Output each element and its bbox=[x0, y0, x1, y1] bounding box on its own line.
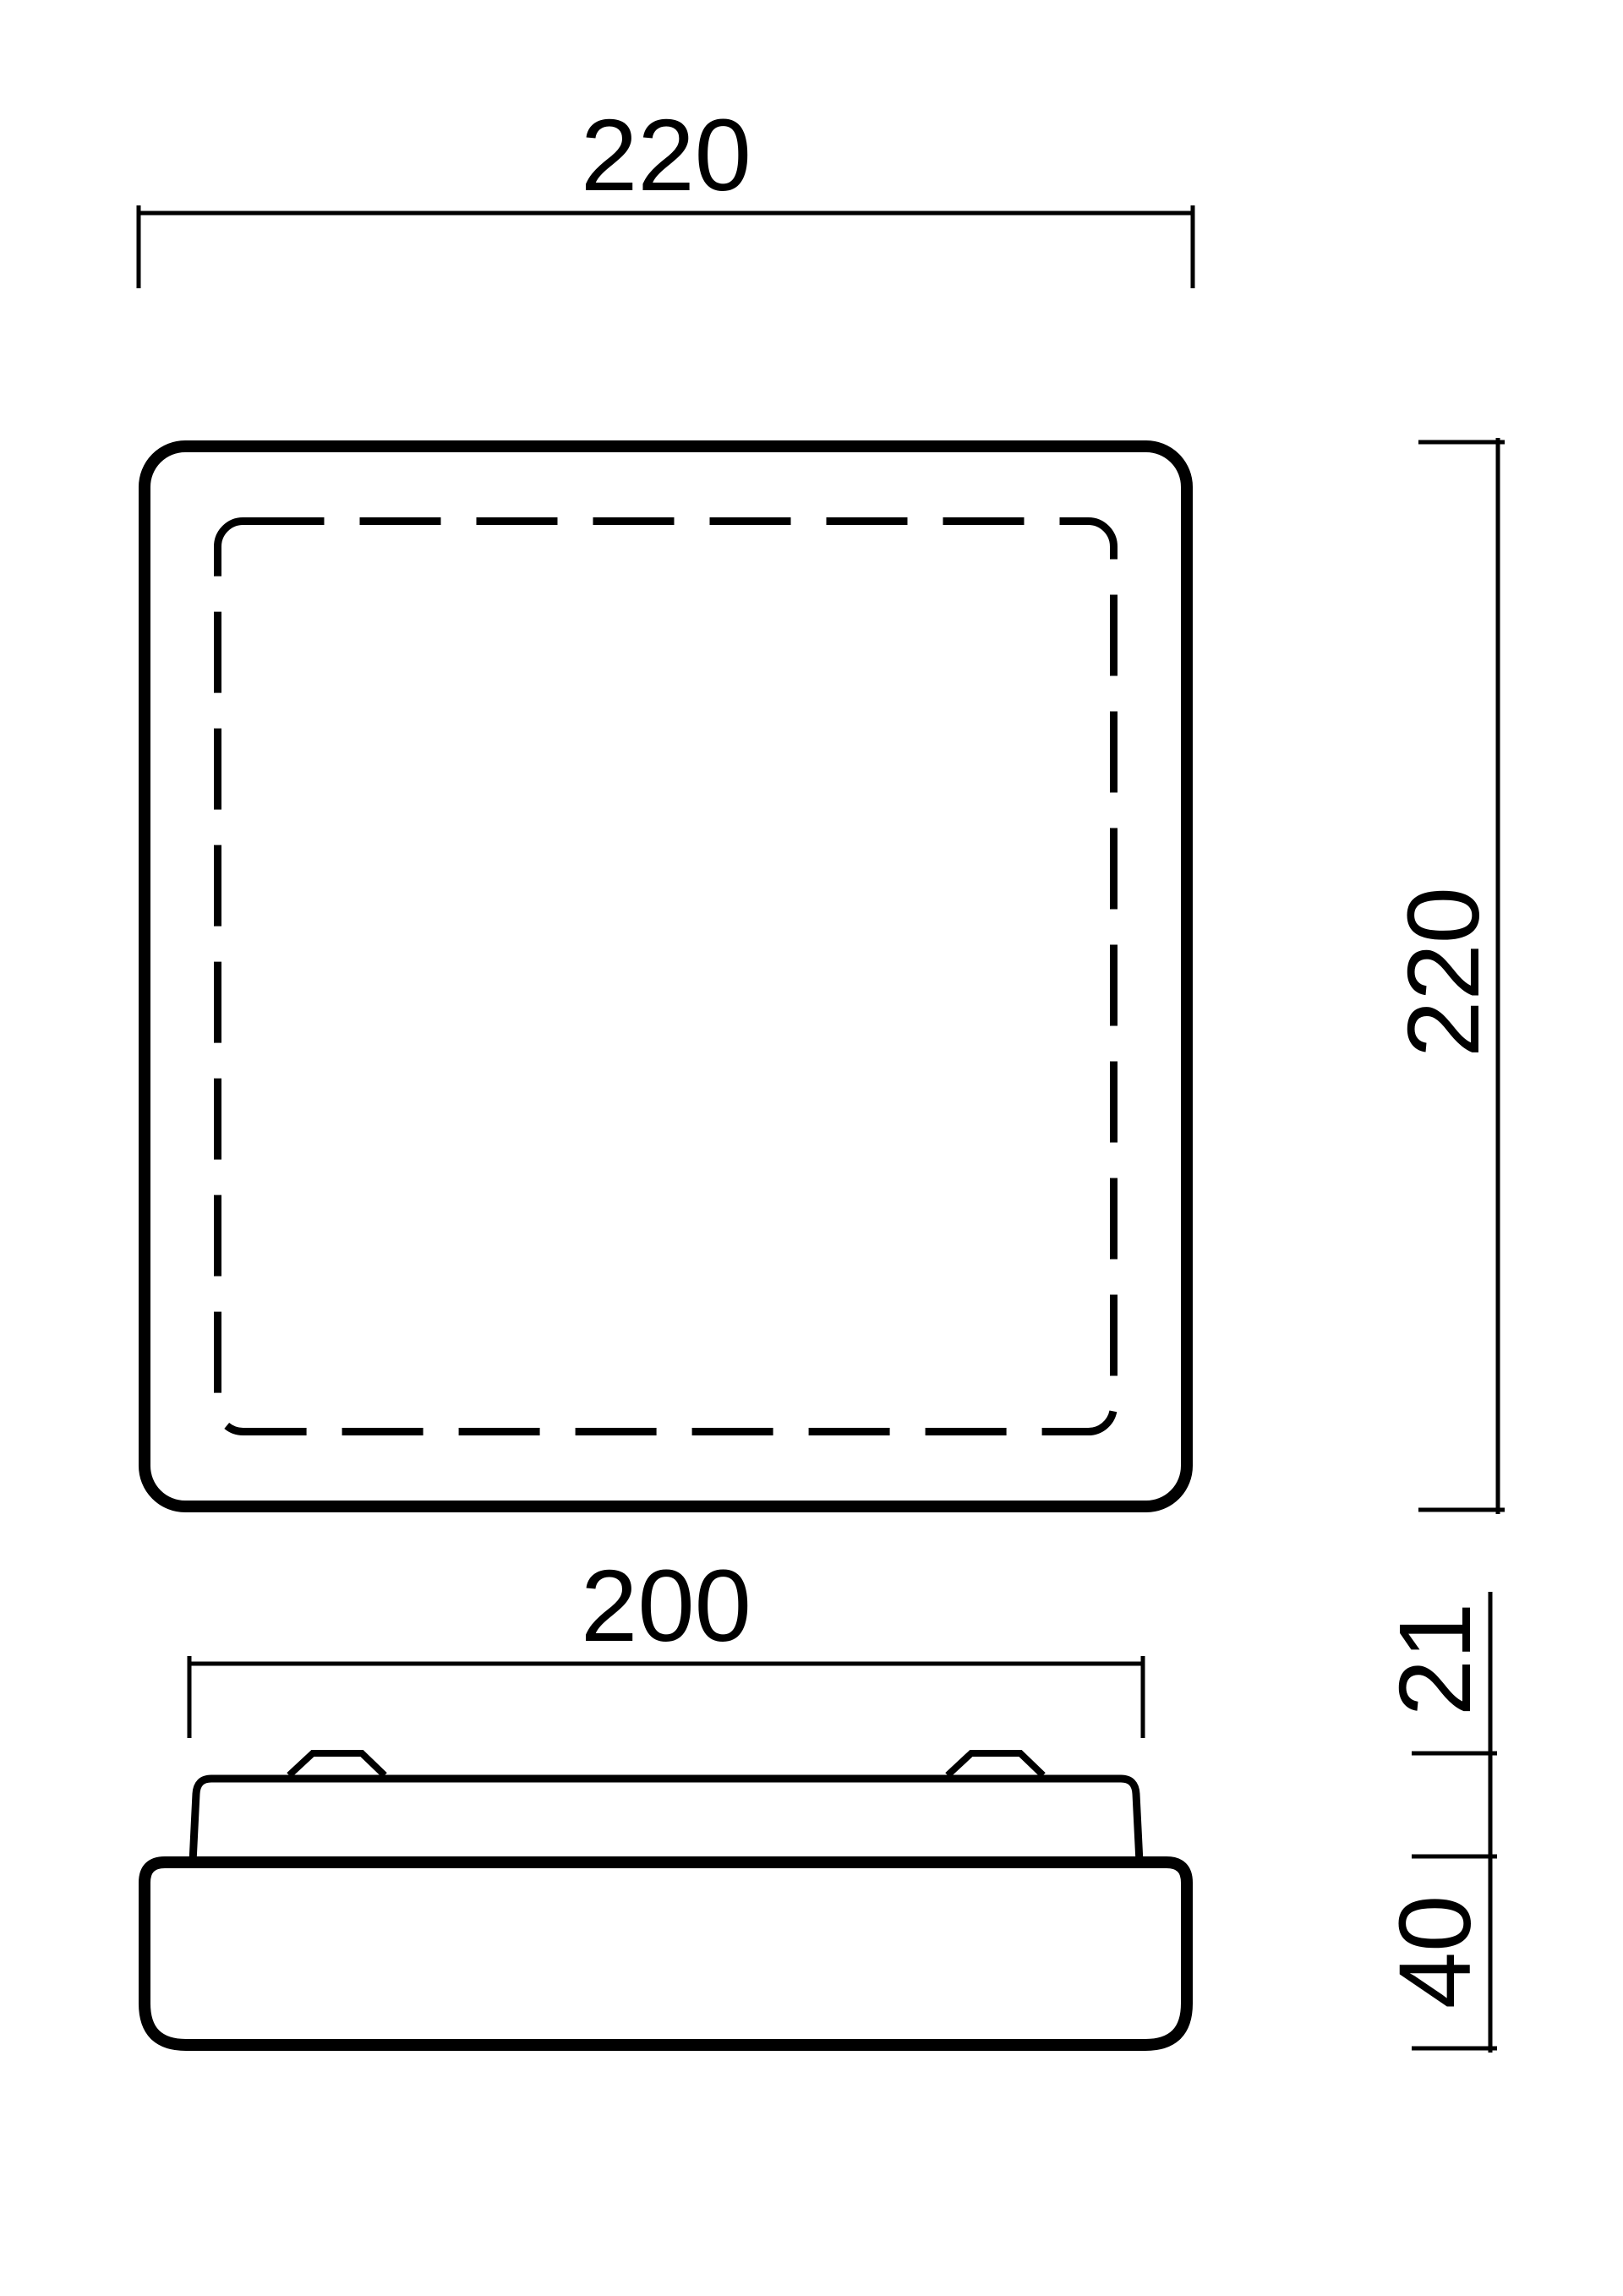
dimension-drawing-svg: 220 220 200 bbox=[0, 0, 1623, 2296]
dim-label-base-height: 40 bbox=[1377, 1895, 1492, 2009]
top-view-outline bbox=[145, 446, 1187, 1506]
front-view-diffuser bbox=[193, 1779, 1139, 1862]
dim-label-diffuser-height: 21 bbox=[1377, 1603, 1492, 1717]
front-view-clip-right bbox=[948, 1753, 1043, 1775]
top-width-dimension: 220 bbox=[139, 97, 1193, 288]
front-width-dimension: 200 bbox=[189, 1548, 1143, 1738]
dim-label-front-width: 200 bbox=[581, 1548, 751, 1663]
front-view-clip-left bbox=[289, 1753, 385, 1775]
top-view bbox=[145, 446, 1187, 1506]
front-view bbox=[145, 1753, 1187, 2045]
drawing-canvas: 220 220 200 bbox=[0, 0, 1623, 2296]
top-view-height-dimension: 220 bbox=[1385, 438, 1505, 1514]
dim-label-top-width: 220 bbox=[581, 97, 751, 212]
dim-label-top-view-height: 220 bbox=[1385, 887, 1500, 1058]
front-view-height-dimensions: 21 40 bbox=[1377, 1592, 1497, 2053]
front-view-base bbox=[145, 1862, 1187, 2045]
